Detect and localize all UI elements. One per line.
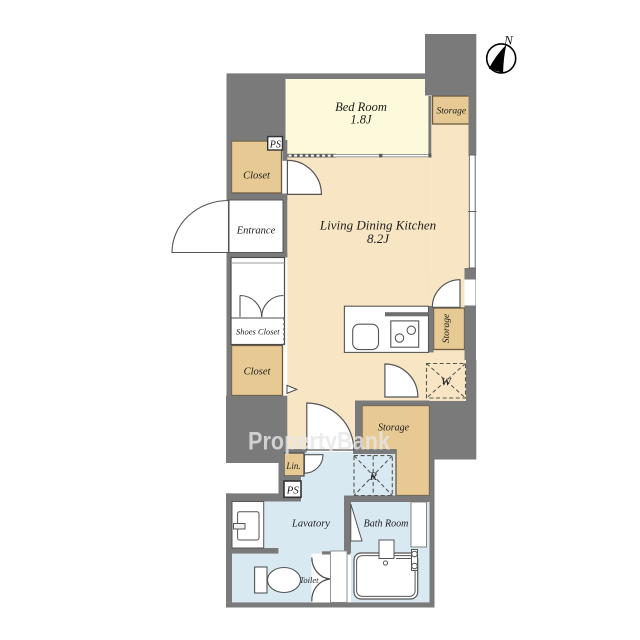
svg-text:Shoes Closet: Shoes Closet bbox=[236, 327, 280, 337]
svg-text:Storage: Storage bbox=[442, 314, 452, 344]
svg-text:Closet: Closet bbox=[243, 171, 271, 182]
svg-text:N: N bbox=[503, 33, 514, 48]
svg-text:Storage: Storage bbox=[437, 107, 467, 117]
svg-text:8.2J: 8.2J bbox=[367, 231, 390, 246]
svg-text:W: W bbox=[441, 375, 452, 389]
svg-text:PropertyBank: PropertyBank bbox=[248, 428, 390, 456]
svg-text:Bath Room: Bath Room bbox=[364, 519, 409, 530]
svg-text:Lavatory: Lavatory bbox=[291, 519, 330, 530]
svg-text:PS: PS bbox=[286, 485, 300, 497]
svg-text:1.8J: 1.8J bbox=[350, 113, 373, 127]
svg-text:R: R bbox=[369, 469, 378, 483]
svg-text:Closet: Closet bbox=[244, 367, 272, 378]
svg-text:Lin.: Lin. bbox=[285, 461, 300, 471]
svg-text:Entrance: Entrance bbox=[236, 226, 276, 237]
svg-text:Toilet: Toilet bbox=[299, 575, 319, 585]
svg-text:PS: PS bbox=[269, 140, 281, 151]
